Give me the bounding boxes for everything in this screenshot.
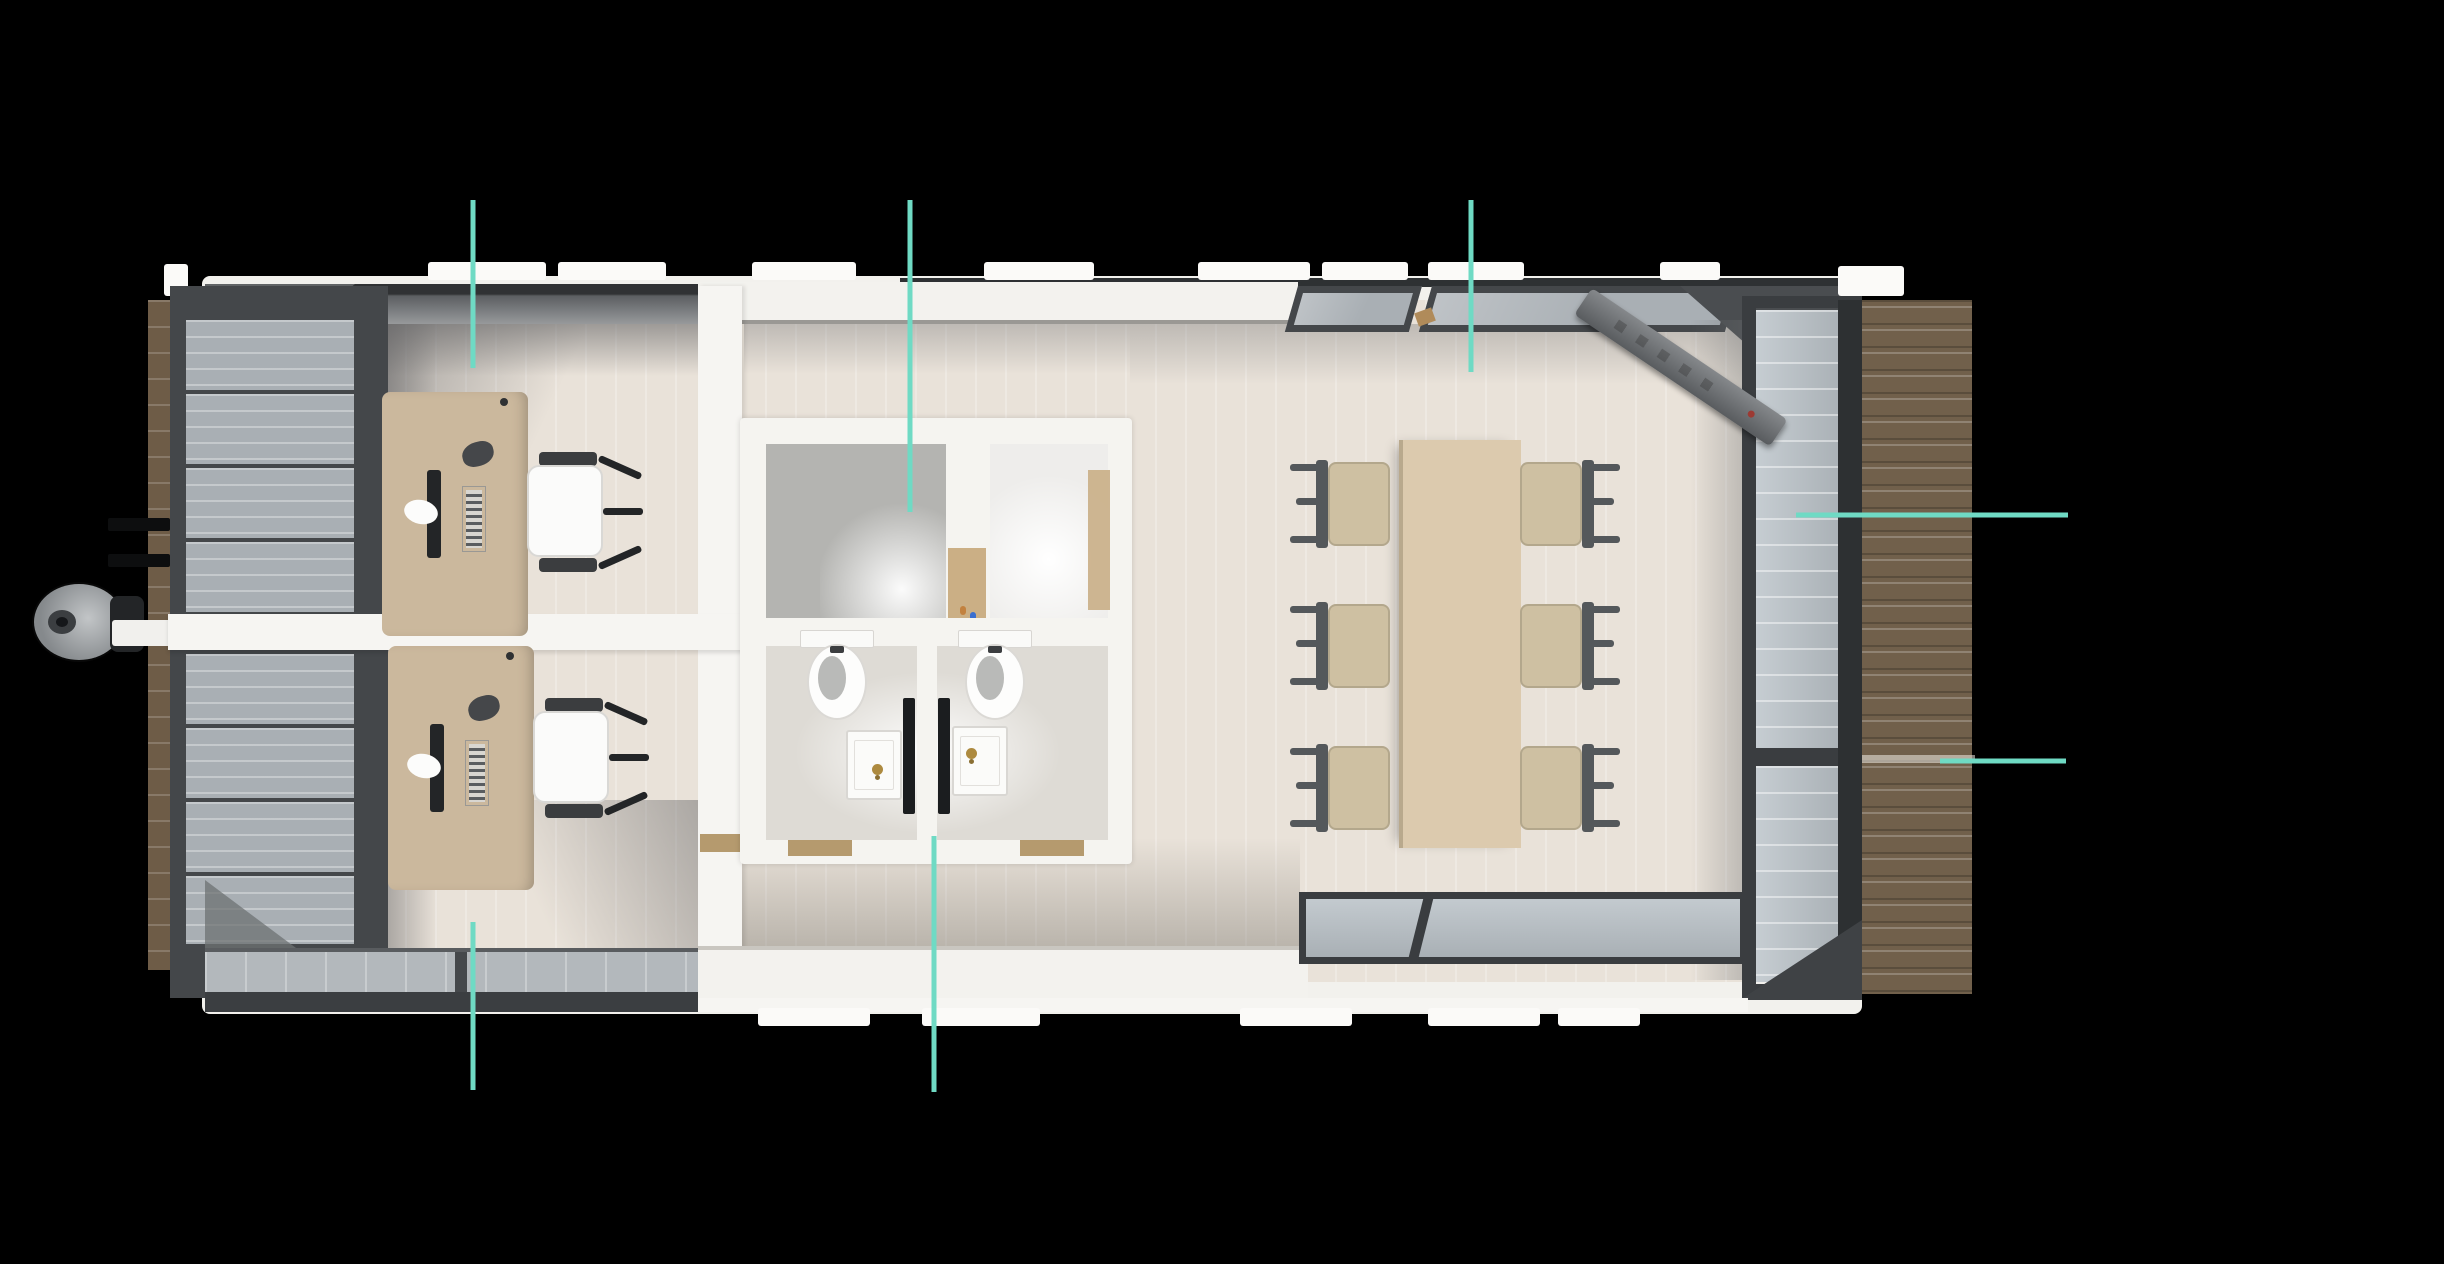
washroom-shelf (1088, 470, 1110, 610)
door-handle-dot (1746, 409, 1756, 419)
left-wall-glass-panel (186, 542, 354, 612)
toilet (958, 630, 1032, 724)
meeting-chair (1516, 458, 1620, 550)
hitch-coupler-eye-icon (48, 610, 76, 634)
meeting-chair (1290, 458, 1394, 550)
window-sill-tab (984, 262, 1094, 280)
keyboard (465, 740, 489, 806)
meeting-chair (1516, 600, 1620, 692)
partition-wood-threshold (700, 834, 740, 852)
light-glow (820, 497, 946, 620)
window-sill-tab (758, 1008, 870, 1026)
washroom-block (740, 418, 1132, 864)
conference-table (1399, 440, 1521, 848)
stall-threshold (1020, 840, 1084, 856)
left-wall-glass-panel (186, 654, 354, 724)
glass-wall-outer-face (1838, 300, 1862, 994)
deck-seam (1861, 755, 1975, 763)
window-sill-tab (1428, 262, 1524, 280)
left-wall-glass-panel (186, 802, 354, 872)
window-sill-tab (1198, 262, 1310, 280)
top-window-1 (1285, 286, 1422, 332)
meeting-chair (1516, 742, 1620, 834)
office-chair (531, 698, 651, 820)
bottom-glazed-door (1299, 892, 1747, 964)
floor-plan-canvas (0, 0, 2444, 1264)
bottom-wall-left-glazing (205, 948, 698, 996)
top-wall-middle (698, 282, 1298, 324)
window-sill-tab (428, 262, 546, 280)
shower-room-left (766, 444, 946, 620)
stall-divider-wall (917, 646, 937, 862)
keyboard (462, 486, 486, 552)
office-chair (525, 452, 645, 574)
sink (952, 726, 1008, 796)
toilet (800, 630, 874, 724)
faucet-icon (872, 764, 883, 775)
window-sill-tab (752, 262, 856, 280)
window-sill-tab (922, 1008, 1040, 1026)
corner-cap-top-right (1838, 266, 1904, 296)
hinge-bracket (108, 518, 170, 531)
meeting-chair (1290, 742, 1394, 834)
stall-threshold (788, 840, 852, 856)
window-sill-tab (1240, 1008, 1352, 1026)
desk-grommet (506, 652, 514, 660)
window-sill-tab (558, 262, 666, 280)
glazing-mullion (1409, 899, 1433, 957)
bottom-wall-middle (698, 946, 1308, 1004)
toiletry-bottle-icon (960, 606, 966, 615)
stall-door (903, 698, 915, 814)
meeting-chair (1290, 600, 1394, 692)
window-sill-tab (1558, 1008, 1640, 1026)
window-sill-tab (1428, 1008, 1540, 1026)
deck (1858, 300, 1972, 994)
window-sill-tab (1660, 262, 1720, 280)
left-wall-glass-panel (186, 728, 354, 798)
left-wall-glass-panel (186, 394, 354, 464)
desk-grommet (500, 398, 508, 406)
hinge-bracket (108, 554, 170, 567)
faucet-icon (966, 748, 977, 759)
window-sill-tab (1322, 262, 1408, 280)
glass-wall-panel-upper (1756, 310, 1840, 748)
left-wall-glass-panel (186, 468, 354, 538)
left-wall-glass-panel (186, 320, 354, 390)
bottom-wall-left-frame-edge (205, 992, 698, 1012)
stall-door (938, 698, 950, 814)
